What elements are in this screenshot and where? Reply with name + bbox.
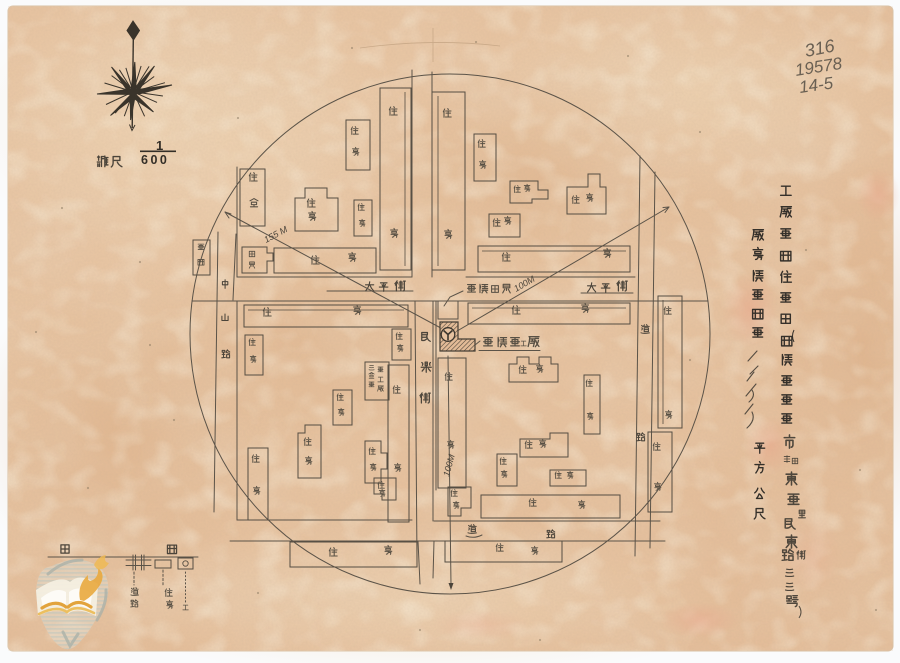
svg-text:600: 600 xyxy=(141,153,169,167)
